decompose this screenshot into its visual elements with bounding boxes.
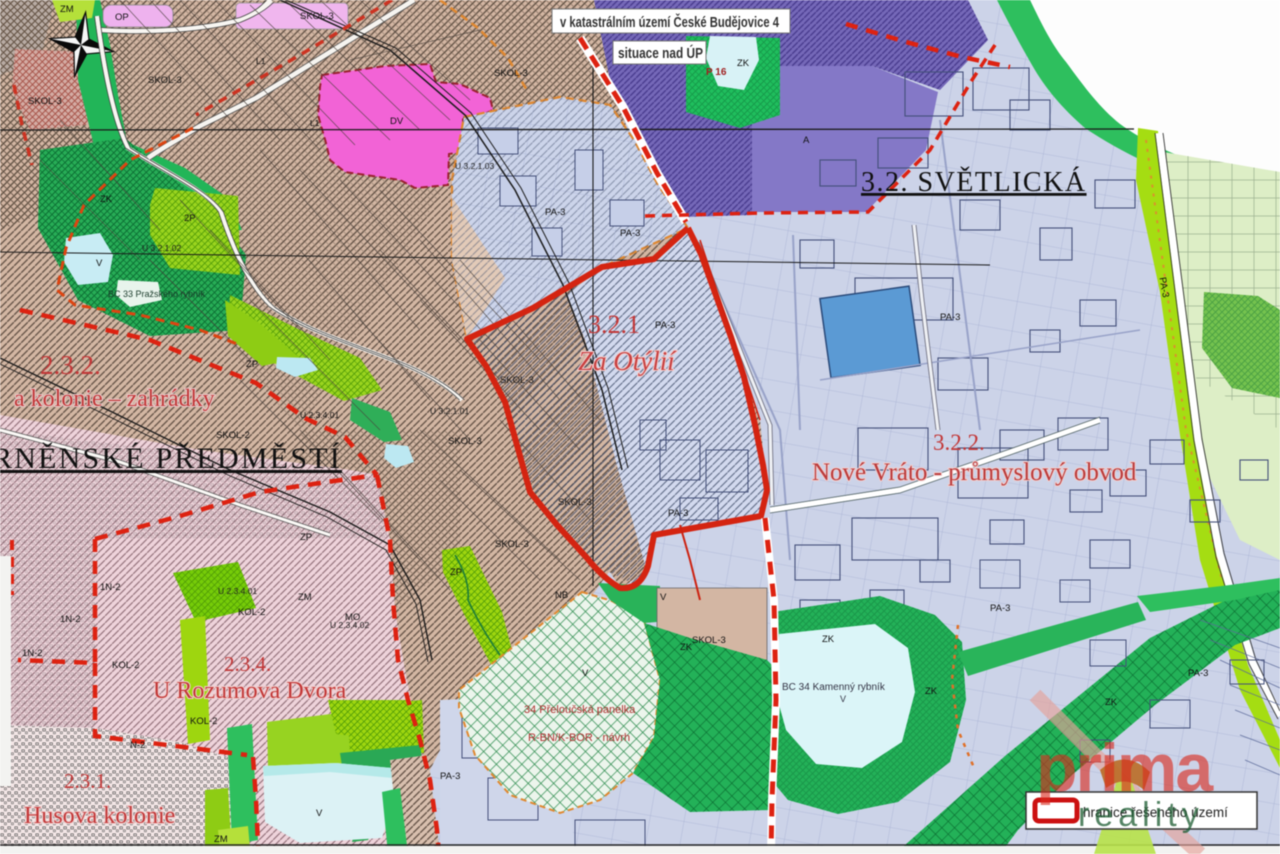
svg-text:3.2.1: 3.2.1 xyxy=(588,310,640,339)
svg-text:34 Přeloučská panelka: 34 Přeloučská panelka xyxy=(524,704,636,716)
svg-text:V: V xyxy=(660,592,667,603)
svg-text:situace nad ÚP: situace nad ÚP xyxy=(618,44,703,62)
svg-text:PA-3: PA-3 xyxy=(620,228,640,239)
svg-text:ZK: ZK xyxy=(1105,697,1118,708)
svg-text:1N-2: 1N-2 xyxy=(22,648,43,659)
svg-text:SKOL-3: SKOL-3 xyxy=(148,75,182,86)
svg-text:SKOL-3: SKOL-3 xyxy=(28,96,62,107)
svg-text:ZM: ZM xyxy=(298,592,312,603)
svg-text:U 3.2.1.03: U 3.2.1.03 xyxy=(455,161,494,171)
svg-text:3.2.2.: 3.2.2. xyxy=(933,430,985,455)
svg-text:PA-3: PA-3 xyxy=(990,603,1010,614)
svg-text:2.3.4.: 2.3.4. xyxy=(224,652,271,676)
svg-text:ZM: ZM xyxy=(60,4,74,15)
svg-text:SKOL-3: SKOL-3 xyxy=(692,635,726,646)
svg-text:ZK: ZK xyxy=(822,634,835,645)
svg-text:ZK: ZK xyxy=(737,58,750,69)
svg-text:1N-2: 1N-2 xyxy=(100,582,121,593)
svg-text:BC 34 Kamenný rybník: BC 34 Kamenný rybník xyxy=(782,682,886,693)
svg-text:PA-3: PA-3 xyxy=(940,312,960,323)
svg-text:Husova kolonie: Husova kolonie xyxy=(24,803,175,829)
svg-text:U 2.3.4.01: U 2.3.4.01 xyxy=(218,586,257,596)
svg-text:Za Otýlií: Za Otýlií xyxy=(578,346,677,376)
svg-text:P 16: P 16 xyxy=(706,67,727,78)
svg-text:L1: L1 xyxy=(256,56,266,66)
svg-text:PA-3: PA-3 xyxy=(545,207,565,218)
svg-text:ZK: ZK xyxy=(680,642,693,653)
svg-text:SKOL-3: SKOL-3 xyxy=(494,68,528,79)
svg-text:reality: reality xyxy=(1078,796,1204,834)
svg-text:U 2.3.4.01: U 2.3.4.01 xyxy=(300,410,339,420)
svg-text:ZK: ZK xyxy=(100,194,113,205)
svg-text:prima: prima xyxy=(1036,730,1214,806)
svg-text:N-2: N-2 xyxy=(130,740,145,751)
svg-text:R-BN/K-BOR - návrh: R-BN/K-BOR - návrh xyxy=(528,732,630,744)
svg-text:KOL-2: KOL-2 xyxy=(112,660,139,671)
svg-text:DV: DV xyxy=(390,116,404,127)
svg-text:V: V xyxy=(840,694,846,704)
svg-text:SKOL-3: SKOL-3 xyxy=(558,497,592,508)
svg-text:U 3.2.1.02: U 3.2.1.02 xyxy=(142,243,181,253)
svg-text:PA-3: PA-3 xyxy=(668,508,688,519)
svg-text:ZK: ZK xyxy=(925,686,938,697)
svg-text:ZP: ZP xyxy=(300,532,312,543)
svg-text:SKOL-3: SKOL-3 xyxy=(495,539,529,550)
svg-text:U 2.3.4.02: U 2.3.4.02 xyxy=(330,620,369,630)
svg-text:SKOL-3: SKOL-3 xyxy=(300,11,334,22)
svg-text:V: V xyxy=(582,668,589,679)
svg-text:2.3.2.: 2.3.2. xyxy=(40,350,101,380)
svg-text:PA-3: PA-3 xyxy=(440,771,460,782)
svg-text:SKOL-2: SKOL-2 xyxy=(216,430,250,441)
svg-text:V: V xyxy=(96,258,103,269)
svg-text:ZM: ZM xyxy=(214,834,228,845)
svg-text:Nové Vráto - průmyslový obvod: Nové Vráto - průmyslový obvod xyxy=(812,459,1137,486)
svg-text:NB: NB xyxy=(555,590,568,601)
svg-text:SKOL-3: SKOL-3 xyxy=(448,436,482,447)
svg-text:a kolonie – zahrádky: a kolonie – zahrádky xyxy=(14,386,215,412)
svg-text:A: A xyxy=(803,135,810,146)
svg-text:1N-2: 1N-2 xyxy=(60,614,81,625)
svg-text:ZP: ZP xyxy=(246,359,258,370)
svg-text:KOL-2: KOL-2 xyxy=(190,716,217,727)
svg-text:RNĚNSKÉ PŘEDMĚSTÍ: RNĚNSKÉ PŘEDMĚSTÍ xyxy=(0,442,342,475)
svg-text:SKOL-3: SKOL-3 xyxy=(500,375,534,386)
svg-text:2P: 2P xyxy=(184,213,196,224)
svg-text:U 3.2.1.01: U 3.2.1.01 xyxy=(430,406,469,416)
svg-text:BC 33 Pražského rybník: BC 33 Pražského rybník xyxy=(108,289,206,299)
svg-text:L1: L1 xyxy=(310,118,320,128)
svg-text:PA-3: PA-3 xyxy=(1188,668,1208,679)
svg-text:KOL-2: KOL-2 xyxy=(238,607,265,618)
svg-text:3.2. SVĚTLICKÁ: 3.2. SVĚTLICKÁ xyxy=(861,167,1087,198)
svg-text:PA-3: PA-3 xyxy=(655,320,675,331)
svg-text:v katastrálním území České Bud: v katastrálním území České Budějovice 4 xyxy=(560,13,779,31)
svg-text:OP: OP xyxy=(115,12,129,23)
svg-text:2.3.1.: 2.3.1. xyxy=(64,769,111,793)
svg-text:V: V xyxy=(316,808,323,819)
svg-text:ZP: ZP xyxy=(450,567,462,578)
svg-text:U Rozumova Dvora: U Rozumova Dvora xyxy=(153,678,347,704)
